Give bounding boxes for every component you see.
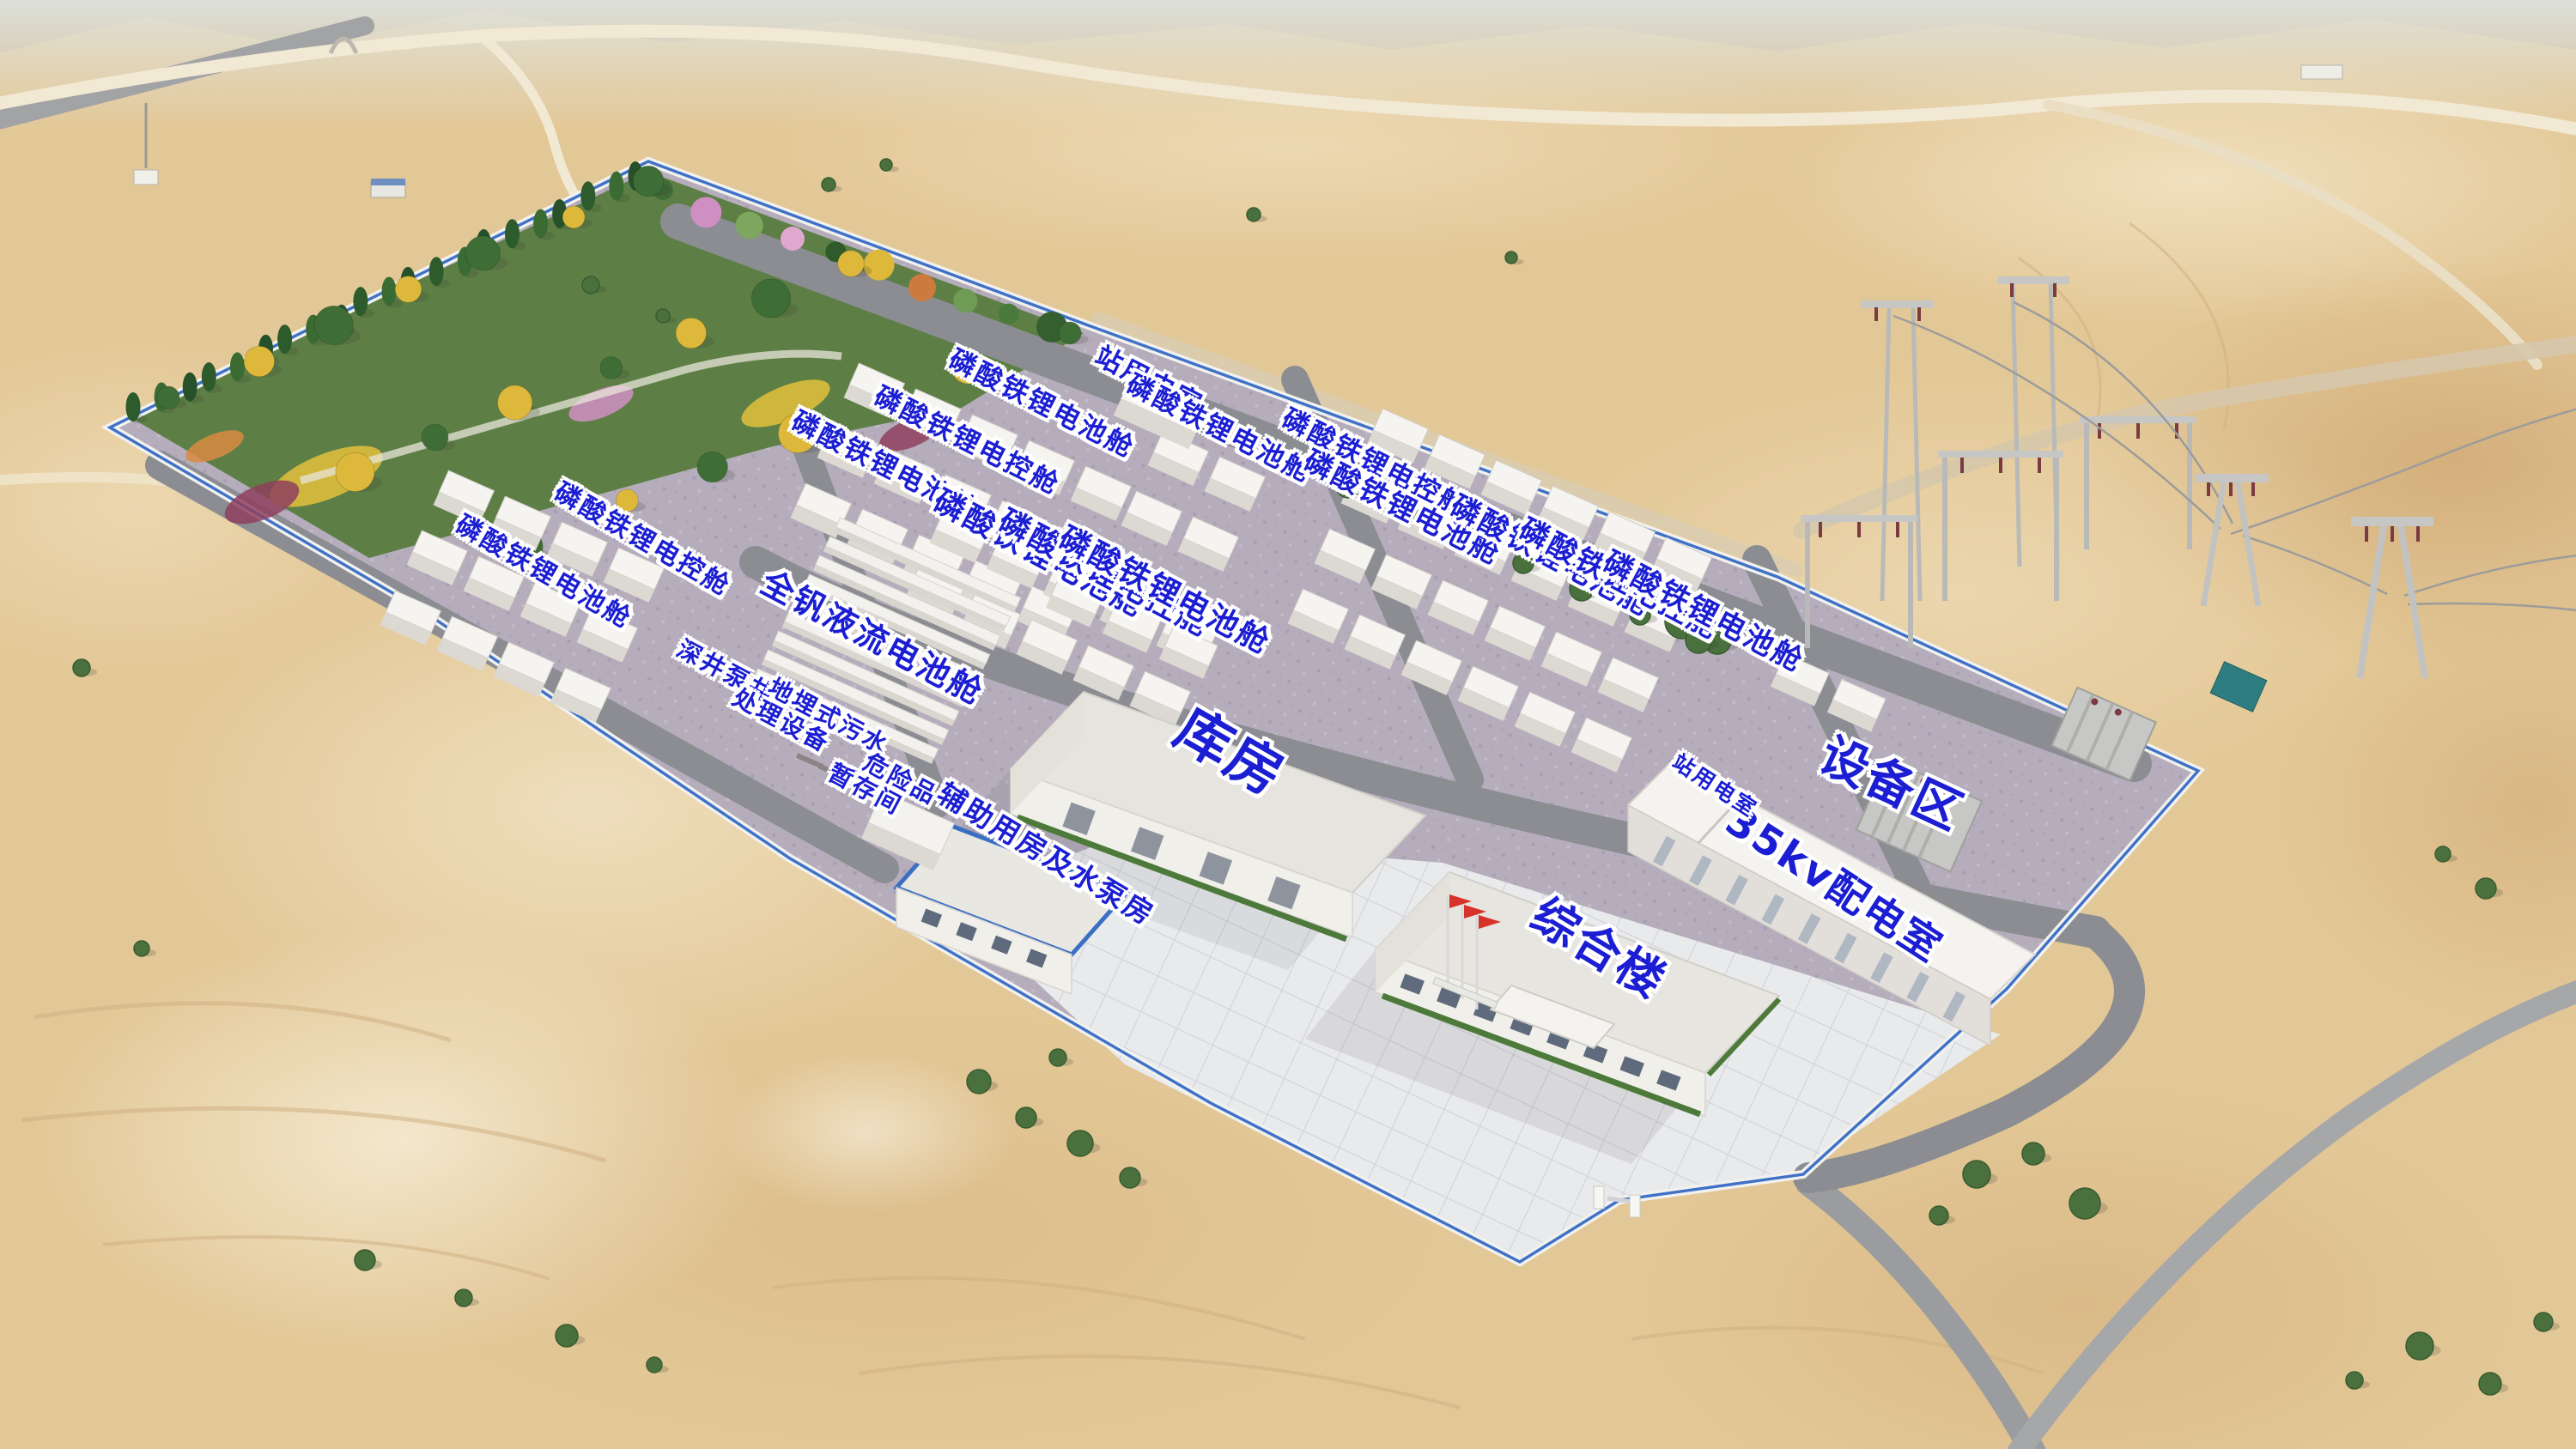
park-tree xyxy=(778,414,817,452)
blue-roof xyxy=(371,179,405,185)
aerial-site-rendering: 站用电室磷酸铁锂电池舱磷酸铁锂电控舱磷酸铁锂电池舱磷酸铁锂电池舱磷酸铁锂电池舱磷… xyxy=(0,0,2576,1449)
park-tree xyxy=(781,227,805,251)
desert-bush xyxy=(1120,1167,1140,1188)
park-tree xyxy=(600,357,623,379)
park-tree xyxy=(751,279,790,318)
park-tree xyxy=(616,489,638,512)
park-tree xyxy=(1059,322,1081,344)
greenhouse xyxy=(2301,65,2342,79)
park-tree xyxy=(951,349,985,384)
desert-bush xyxy=(1452,524,1478,550)
desert-bush xyxy=(2534,1313,2553,1331)
park-tree xyxy=(697,452,728,482)
desert-bush xyxy=(1686,627,1711,653)
desert-bush xyxy=(2022,1143,2044,1165)
cypress-tree xyxy=(382,277,397,306)
park-tree xyxy=(395,276,422,303)
desert-bush xyxy=(2476,878,2496,899)
cypress-tree xyxy=(533,209,548,239)
desert-bush xyxy=(2346,1372,2363,1389)
desert-bush xyxy=(2479,1373,2501,1395)
desert-bush xyxy=(1513,553,1534,573)
cypress-tree xyxy=(609,172,623,201)
desert-bush xyxy=(647,1357,662,1373)
park-tree xyxy=(633,166,664,197)
cypress-tree xyxy=(580,181,595,210)
desert-bush xyxy=(1247,208,1261,221)
park-tree xyxy=(422,424,448,451)
park-tree xyxy=(690,197,721,227)
park-tree xyxy=(336,452,374,491)
desert-bush xyxy=(2406,1332,2433,1360)
desert-bush xyxy=(1929,1206,1948,1225)
desert-bush xyxy=(355,1250,375,1270)
cypress-tree xyxy=(277,324,292,354)
desert-bush xyxy=(822,178,835,191)
cypress-tree xyxy=(126,392,141,421)
desert-bush xyxy=(1650,590,1673,612)
desert-hut xyxy=(134,170,158,185)
desert-bush xyxy=(967,1070,991,1094)
desert-bush xyxy=(556,1325,578,1347)
park-tree xyxy=(497,385,532,420)
park-tree xyxy=(999,304,1019,324)
park-tree xyxy=(953,288,977,312)
desert-bush xyxy=(1067,1131,1093,1156)
desert-bush xyxy=(582,276,599,294)
desert-bush xyxy=(2069,1188,2100,1219)
park-tree xyxy=(908,274,936,301)
desert-bush xyxy=(1630,604,1650,625)
desert-bush xyxy=(880,159,892,171)
desert-bush xyxy=(1963,1161,1990,1188)
park-tree xyxy=(838,251,865,277)
cypress-tree xyxy=(230,352,245,381)
cypress-tree xyxy=(505,219,519,248)
desert-bush xyxy=(2435,846,2451,862)
desert-bush xyxy=(1505,252,1517,264)
desert-bush xyxy=(1336,474,1360,498)
park-tree xyxy=(157,386,179,409)
desert-bush xyxy=(73,659,90,676)
park-tree xyxy=(244,346,275,377)
desert-bush xyxy=(1570,577,1594,601)
cypress-tree xyxy=(183,373,197,402)
cypress-tree xyxy=(429,257,444,286)
desert-bush xyxy=(656,309,670,323)
park-tree xyxy=(562,206,585,228)
desert-bush xyxy=(455,1289,472,1307)
park-tree xyxy=(314,306,353,344)
desert-bush xyxy=(1049,1049,1066,1066)
park-tree xyxy=(676,318,707,349)
cypress-tree xyxy=(202,362,216,391)
desert-bush xyxy=(134,941,149,956)
park-tree xyxy=(736,212,763,239)
park-tree xyxy=(465,236,500,270)
desert-bush xyxy=(1395,500,1418,523)
park-tree xyxy=(864,250,895,281)
desert-bush xyxy=(1016,1107,1036,1128)
scene-canvas xyxy=(0,0,2576,1449)
cypress-tree xyxy=(353,287,368,316)
